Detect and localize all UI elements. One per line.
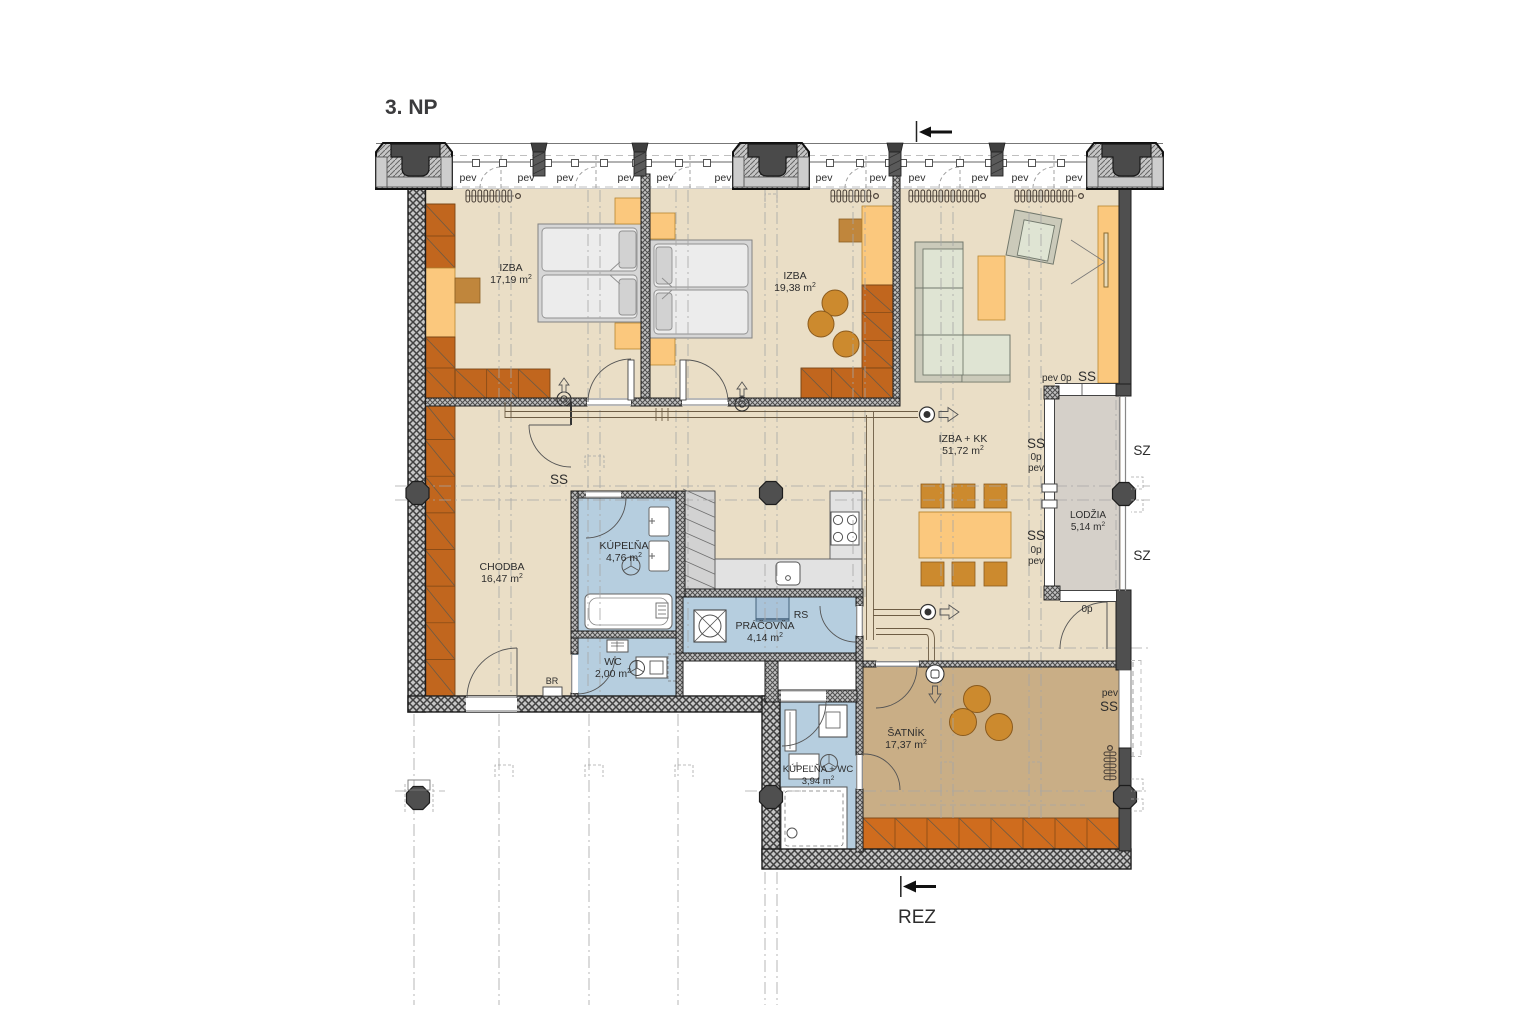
svg-text:SZ: SZ [1133, 443, 1150, 458]
svg-text:pev: pev [1042, 373, 1058, 384]
svg-text:2,00 m2: 2,00 m2 [595, 668, 631, 680]
svg-text:pev: pev [816, 172, 834, 184]
svg-text:SS: SS [1078, 369, 1096, 384]
svg-text:pev: pev [715, 172, 733, 184]
svg-text:0p: 0p [1030, 452, 1042, 463]
svg-text:0p: 0p [1081, 604, 1093, 615]
svg-text:SS: SS [1100, 699, 1118, 714]
svg-text:ŠATNÍK: ŠATNÍK [887, 726, 924, 739]
svg-text:BR: BR [546, 676, 559, 686]
svg-text:pev: pev [909, 172, 927, 184]
svg-text:CHODBA: CHODBA [480, 561, 525, 573]
svg-text:WC: WC [604, 656, 622, 668]
svg-text:pev: pev [1028, 556, 1044, 567]
svg-text:REZ: REZ [898, 907, 936, 928]
svg-text:pev: pev [972, 172, 990, 184]
svg-text:pev: pev [557, 172, 575, 184]
svg-text:5,14 m2: 5,14 m2 [1071, 521, 1106, 533]
svg-text:KÚPEĽŇA + WC: KÚPEĽŇA + WC [783, 764, 854, 775]
svg-text:0p: 0p [1060, 373, 1072, 384]
svg-text:pev: pev [870, 172, 888, 184]
svg-text:SS: SS [550, 472, 568, 487]
svg-text:pev: pev [657, 172, 675, 184]
svg-text:pev: pev [1066, 172, 1084, 184]
svg-text:0p: 0p [1030, 545, 1042, 556]
svg-text:17,37 m2: 17,37 m2 [885, 739, 927, 751]
svg-text:3. NP: 3. NP [385, 96, 438, 119]
svg-text:pev: pev [1012, 172, 1030, 184]
svg-text:16,47 m2: 16,47 m2 [481, 573, 523, 585]
svg-text:SS: SS [1027, 436, 1045, 451]
svg-text:19,38 m2: 19,38 m2 [774, 282, 816, 294]
svg-text:KÚPEĽŇA: KÚPEĽŇA [599, 539, 648, 552]
svg-text:LODŽIA: LODŽIA [1070, 508, 1106, 521]
svg-text:IZBA + KK: IZBA + KK [939, 433, 988, 445]
svg-text:PRÁČOVŇA: PRÁČOVŇA [736, 619, 795, 632]
svg-text:RS: RS [794, 609, 809, 621]
svg-text:pev: pev [1028, 463, 1044, 474]
svg-text:SZ: SZ [1133, 548, 1150, 563]
svg-text:SS: SS [1027, 528, 1045, 543]
svg-text:pev: pev [460, 172, 478, 184]
svg-text:4,76 m2: 4,76 m2 [606, 552, 642, 564]
svg-text:pev: pev [618, 172, 636, 184]
svg-text:pev: pev [1102, 688, 1118, 699]
svg-text:51,72 m2: 51,72 m2 [942, 445, 984, 457]
svg-text:3,94 m2: 3,94 m2 [802, 775, 835, 787]
svg-text:4,14 m2: 4,14 m2 [747, 632, 783, 644]
svg-text:17,19 m2: 17,19 m2 [490, 274, 532, 286]
svg-text:IZBA: IZBA [499, 262, 522, 274]
svg-text:IZBA: IZBA [783, 270, 806, 282]
